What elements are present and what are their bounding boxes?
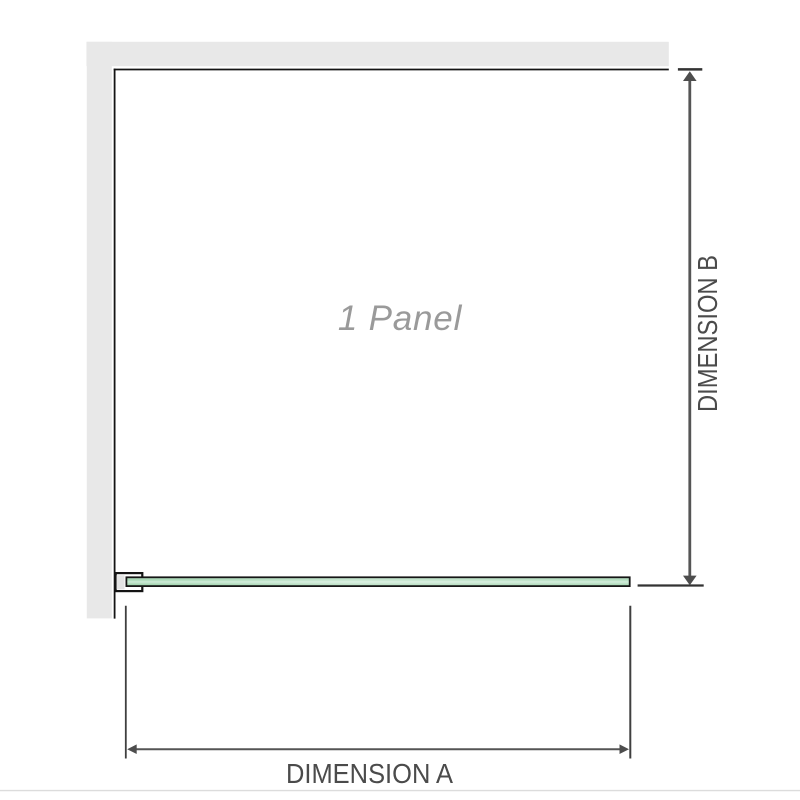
svg-text:1 Panel: 1 Panel — [338, 299, 463, 338]
svg-text:DIMENSION A: DIMENSION A — [286, 758, 453, 789]
svg-text:DIMENSION B: DIMENSION B — [692, 255, 723, 412]
